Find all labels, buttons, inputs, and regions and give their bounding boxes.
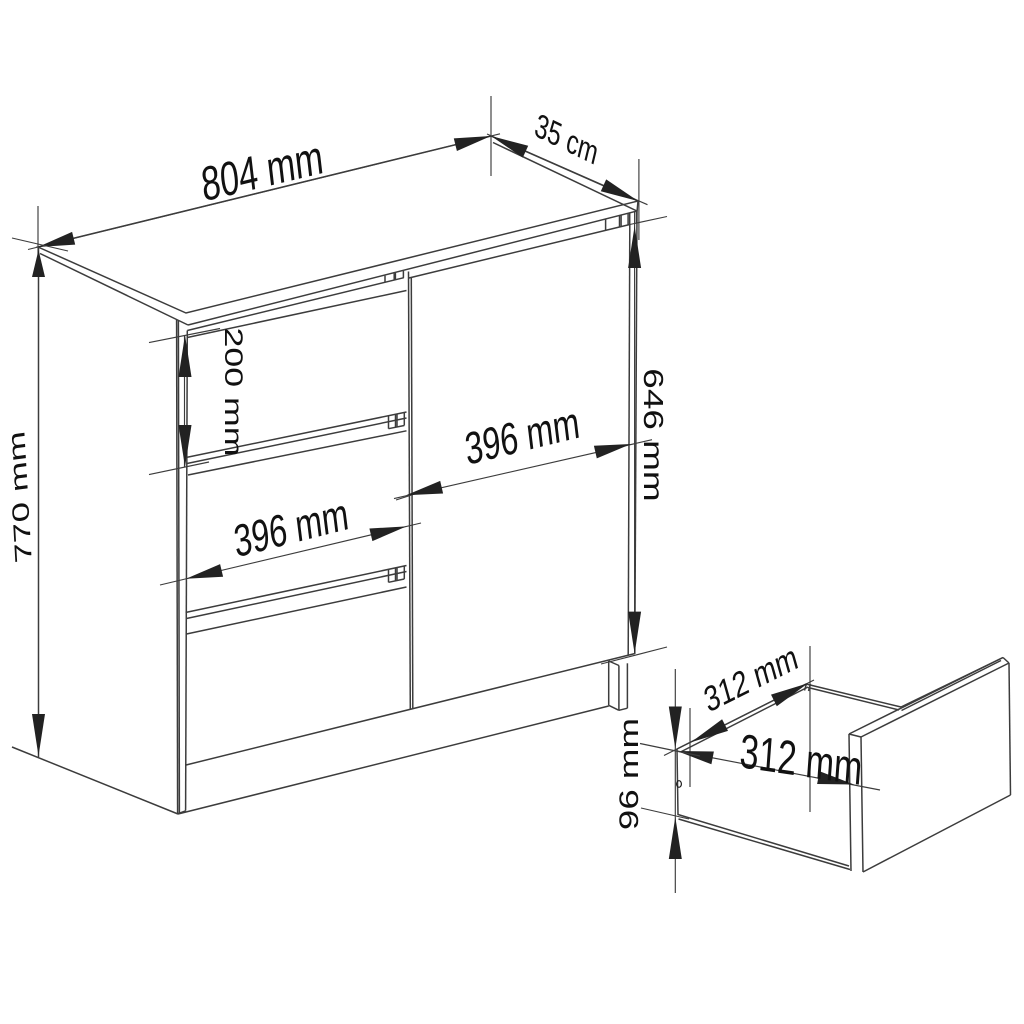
svg-text:96 mm: 96 mm <box>614 718 644 830</box>
svg-text:646 mm: 646 mm <box>638 368 670 501</box>
svg-text:200 mm: 200 mm <box>219 327 247 456</box>
